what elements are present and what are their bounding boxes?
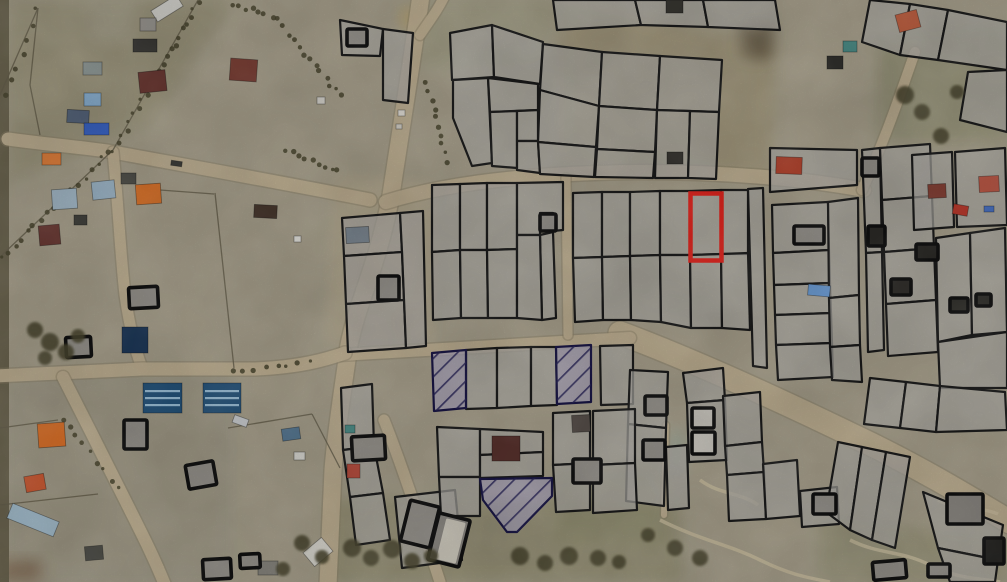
satellite-map-view[interactable] [0,0,1007,582]
noise-overlay-light [0,0,1007,582]
satellite-basemap[interactable] [0,0,1007,582]
